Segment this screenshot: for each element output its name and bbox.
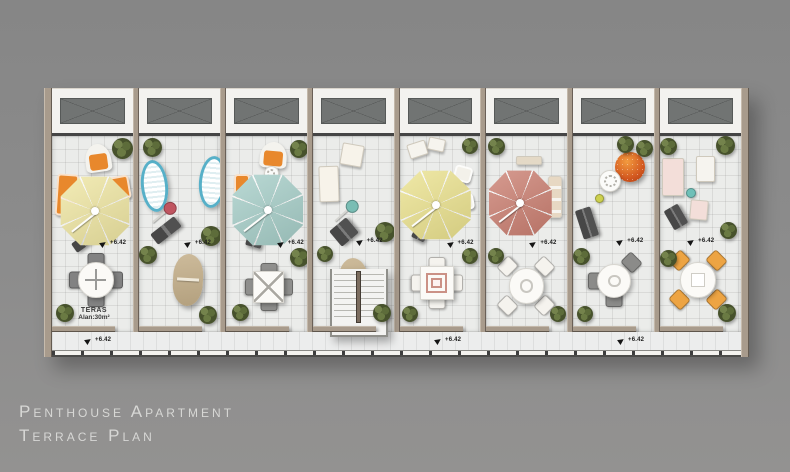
terrace-unit-8: +6.42 [660, 88, 741, 332]
elevation-value: +6.42 [628, 337, 644, 343]
elevation-marker: +6.42 [435, 337, 461, 343]
elevation-arrow-icon [687, 236, 698, 246]
lounger-mat [426, 136, 445, 152]
table-top [680, 262, 715, 297]
elevation-marker: +6.42 [100, 240, 126, 246]
area-label-line: Alan:30m² [70, 314, 118, 321]
elevation-marker: +6.42 [530, 240, 556, 246]
elevation-arrow-icon [447, 238, 458, 248]
bench [664, 203, 689, 230]
potted-plant [716, 136, 735, 155]
potted-plant [660, 250, 677, 267]
drawing-title: Penthouse Apartment Terrace Plan [19, 402, 234, 446]
potted-plant [720, 222, 737, 239]
potted-plant [199, 306, 217, 324]
potted-plant [317, 246, 333, 262]
bench [575, 206, 599, 239]
area-label: TERASAlan:30m² [70, 307, 118, 321]
elevation-value: +6.42 [95, 337, 111, 343]
skylight-window [313, 88, 394, 136]
skylight-window [660, 88, 741, 136]
dining-table-set [70, 254, 122, 306]
table-top [253, 271, 284, 302]
terrace-unit-3: +6.42 [226, 88, 307, 332]
patio-umbrella [60, 176, 130, 246]
potted-plant [290, 248, 307, 267]
table-top [509, 268, 544, 303]
elevation-arrow-icon [277, 238, 288, 248]
elevation-arrow-icon [356, 236, 367, 246]
skylight-window [486, 88, 567, 136]
patterned-mat [689, 199, 709, 220]
potted-plant [660, 138, 677, 155]
potted-plant [402, 306, 418, 322]
potted-plant [143, 138, 162, 157]
bench [329, 217, 359, 246]
skylight-window [139, 88, 220, 136]
surf-lounger [172, 253, 205, 306]
elevation-value: +6.42 [110, 240, 126, 246]
shelf-bench [516, 156, 542, 165]
dining-table-set [246, 264, 292, 310]
potted-plant [636, 140, 653, 157]
skylight-window [52, 88, 133, 136]
terrace-units-row: +6.42TERASAlan:30m²+6.42+6.42+6.42+6.42+… [52, 88, 741, 332]
elevation-value: +6.42 [458, 240, 474, 246]
parapet-wall [486, 326, 549, 332]
skylight-window [573, 88, 654, 136]
skylight-window [400, 88, 481, 136]
elevation-marker: +6.42 [357, 238, 383, 244]
walkway-railing [52, 350, 741, 357]
skylight-window [226, 88, 307, 136]
elevation-value: +6.42 [445, 337, 461, 343]
patio-umbrella [232, 174, 304, 246]
terrace-floor: +6.42TERASAlan:30m² [52, 136, 133, 332]
outer-wall-left [44, 88, 52, 357]
elevation-marker: +6.42 [278, 240, 304, 246]
terrace-floor: +6.42 [660, 136, 741, 332]
parapet-wall [52, 326, 115, 332]
elevation-arrow-icon [184, 238, 195, 248]
elevation-arrow-icon [84, 335, 95, 345]
parapet-wall [573, 326, 636, 332]
elevation-marker: +6.42 [185, 240, 211, 246]
lounger-mat [339, 142, 364, 167]
parapet-wall [400, 326, 463, 332]
stair-center-rail [356, 271, 361, 323]
potted-plant [550, 306, 566, 322]
floor-plan: +6.42TERASAlan:30m²+6.42+6.42+6.42+6.42+… [44, 88, 749, 357]
elevation-marker: +6.42 [617, 238, 643, 244]
elevation-arrow-icon [434, 335, 445, 345]
hooded-beach-chair [259, 141, 288, 169]
lounger-mat [696, 156, 715, 182]
elevation-arrow-icon [529, 238, 540, 248]
table-top [78, 262, 113, 297]
terrace-floor: +6.42 [486, 136, 567, 332]
terrace-floor: +6.42 [139, 136, 220, 332]
terrace-unit-5: +6.42 [400, 88, 481, 332]
elevation-marker: +6.42 [448, 240, 474, 246]
watering-can [595, 194, 604, 203]
area-label-line: TERAS [70, 307, 118, 314]
terrace-floor: +6.42 [400, 136, 481, 332]
title-line-2: Terrace Plan [19, 426, 234, 446]
round-side-table [599, 170, 621, 192]
potted-plant [573, 248, 590, 265]
outer-wall-right [741, 88, 749, 357]
terrace-unit-1: +6.42TERASAlan:30m² [52, 88, 133, 332]
patio-umbrella [488, 170, 552, 236]
potted-plant [577, 306, 593, 322]
terrace-unit-2: +6.42 [139, 88, 220, 332]
elevation-value: +6.42 [195, 240, 211, 246]
table-top [597, 264, 631, 298]
table-top [420, 266, 454, 300]
potted-plant [462, 138, 478, 154]
elevation-value: +6.42 [627, 238, 643, 244]
parapet-wall [139, 326, 202, 332]
potted-plant [139, 246, 157, 264]
parapet-wall [313, 326, 376, 332]
patterned-mat [662, 158, 684, 196]
elevation-marker: +6.42 [618, 337, 644, 343]
dining-table-set [589, 256, 639, 306]
terrace-plan-canvas: +6.42TERASAlan:30m²+6.42+6.42+6.42+6.42+… [0, 0, 790, 472]
lounger-mat [318, 166, 339, 203]
elevation-arrow-icon [99, 238, 110, 248]
lounger-mat [406, 139, 429, 159]
parapet-wall [660, 326, 723, 332]
potted-plant [718, 304, 736, 322]
hooded-beach-chair [83, 142, 113, 173]
walkway: +6.42+6.42+6.42 [52, 332, 741, 350]
elevation-value: +6.42 [698, 238, 714, 244]
potted-plant [373, 304, 391, 322]
terrace-floor: +6.42 [226, 136, 307, 332]
potted-plant [617, 136, 634, 153]
potted-plant [232, 304, 249, 321]
potted-plant [112, 138, 133, 159]
elevation-marker: +6.42 [688, 238, 714, 244]
terrace-unit-6: +6.42 [486, 88, 567, 332]
elevation-arrow-icon [616, 236, 627, 246]
dining-table-set [500, 260, 552, 312]
elevation-arrow-icon [617, 335, 628, 345]
elevation-value: +6.42 [540, 240, 556, 246]
title-line-1: Penthouse Apartment [19, 402, 234, 422]
elevation-value: +6.42 [288, 240, 304, 246]
terrace-floor: +6.42 [573, 136, 654, 332]
elevation-marker: +6.42 [85, 337, 111, 343]
watering-can [686, 188, 696, 198]
elevation-value: +6.42 [367, 238, 383, 244]
potted-plant [488, 138, 505, 155]
potted-plant [290, 140, 307, 158]
dining-table-set [672, 254, 724, 306]
potted-plant [462, 248, 478, 264]
sun-lounger [197, 155, 220, 209]
dining-table-set [412, 258, 462, 308]
parapet-wall [226, 326, 289, 332]
terrace-unit-7: +6.42 [573, 88, 654, 332]
